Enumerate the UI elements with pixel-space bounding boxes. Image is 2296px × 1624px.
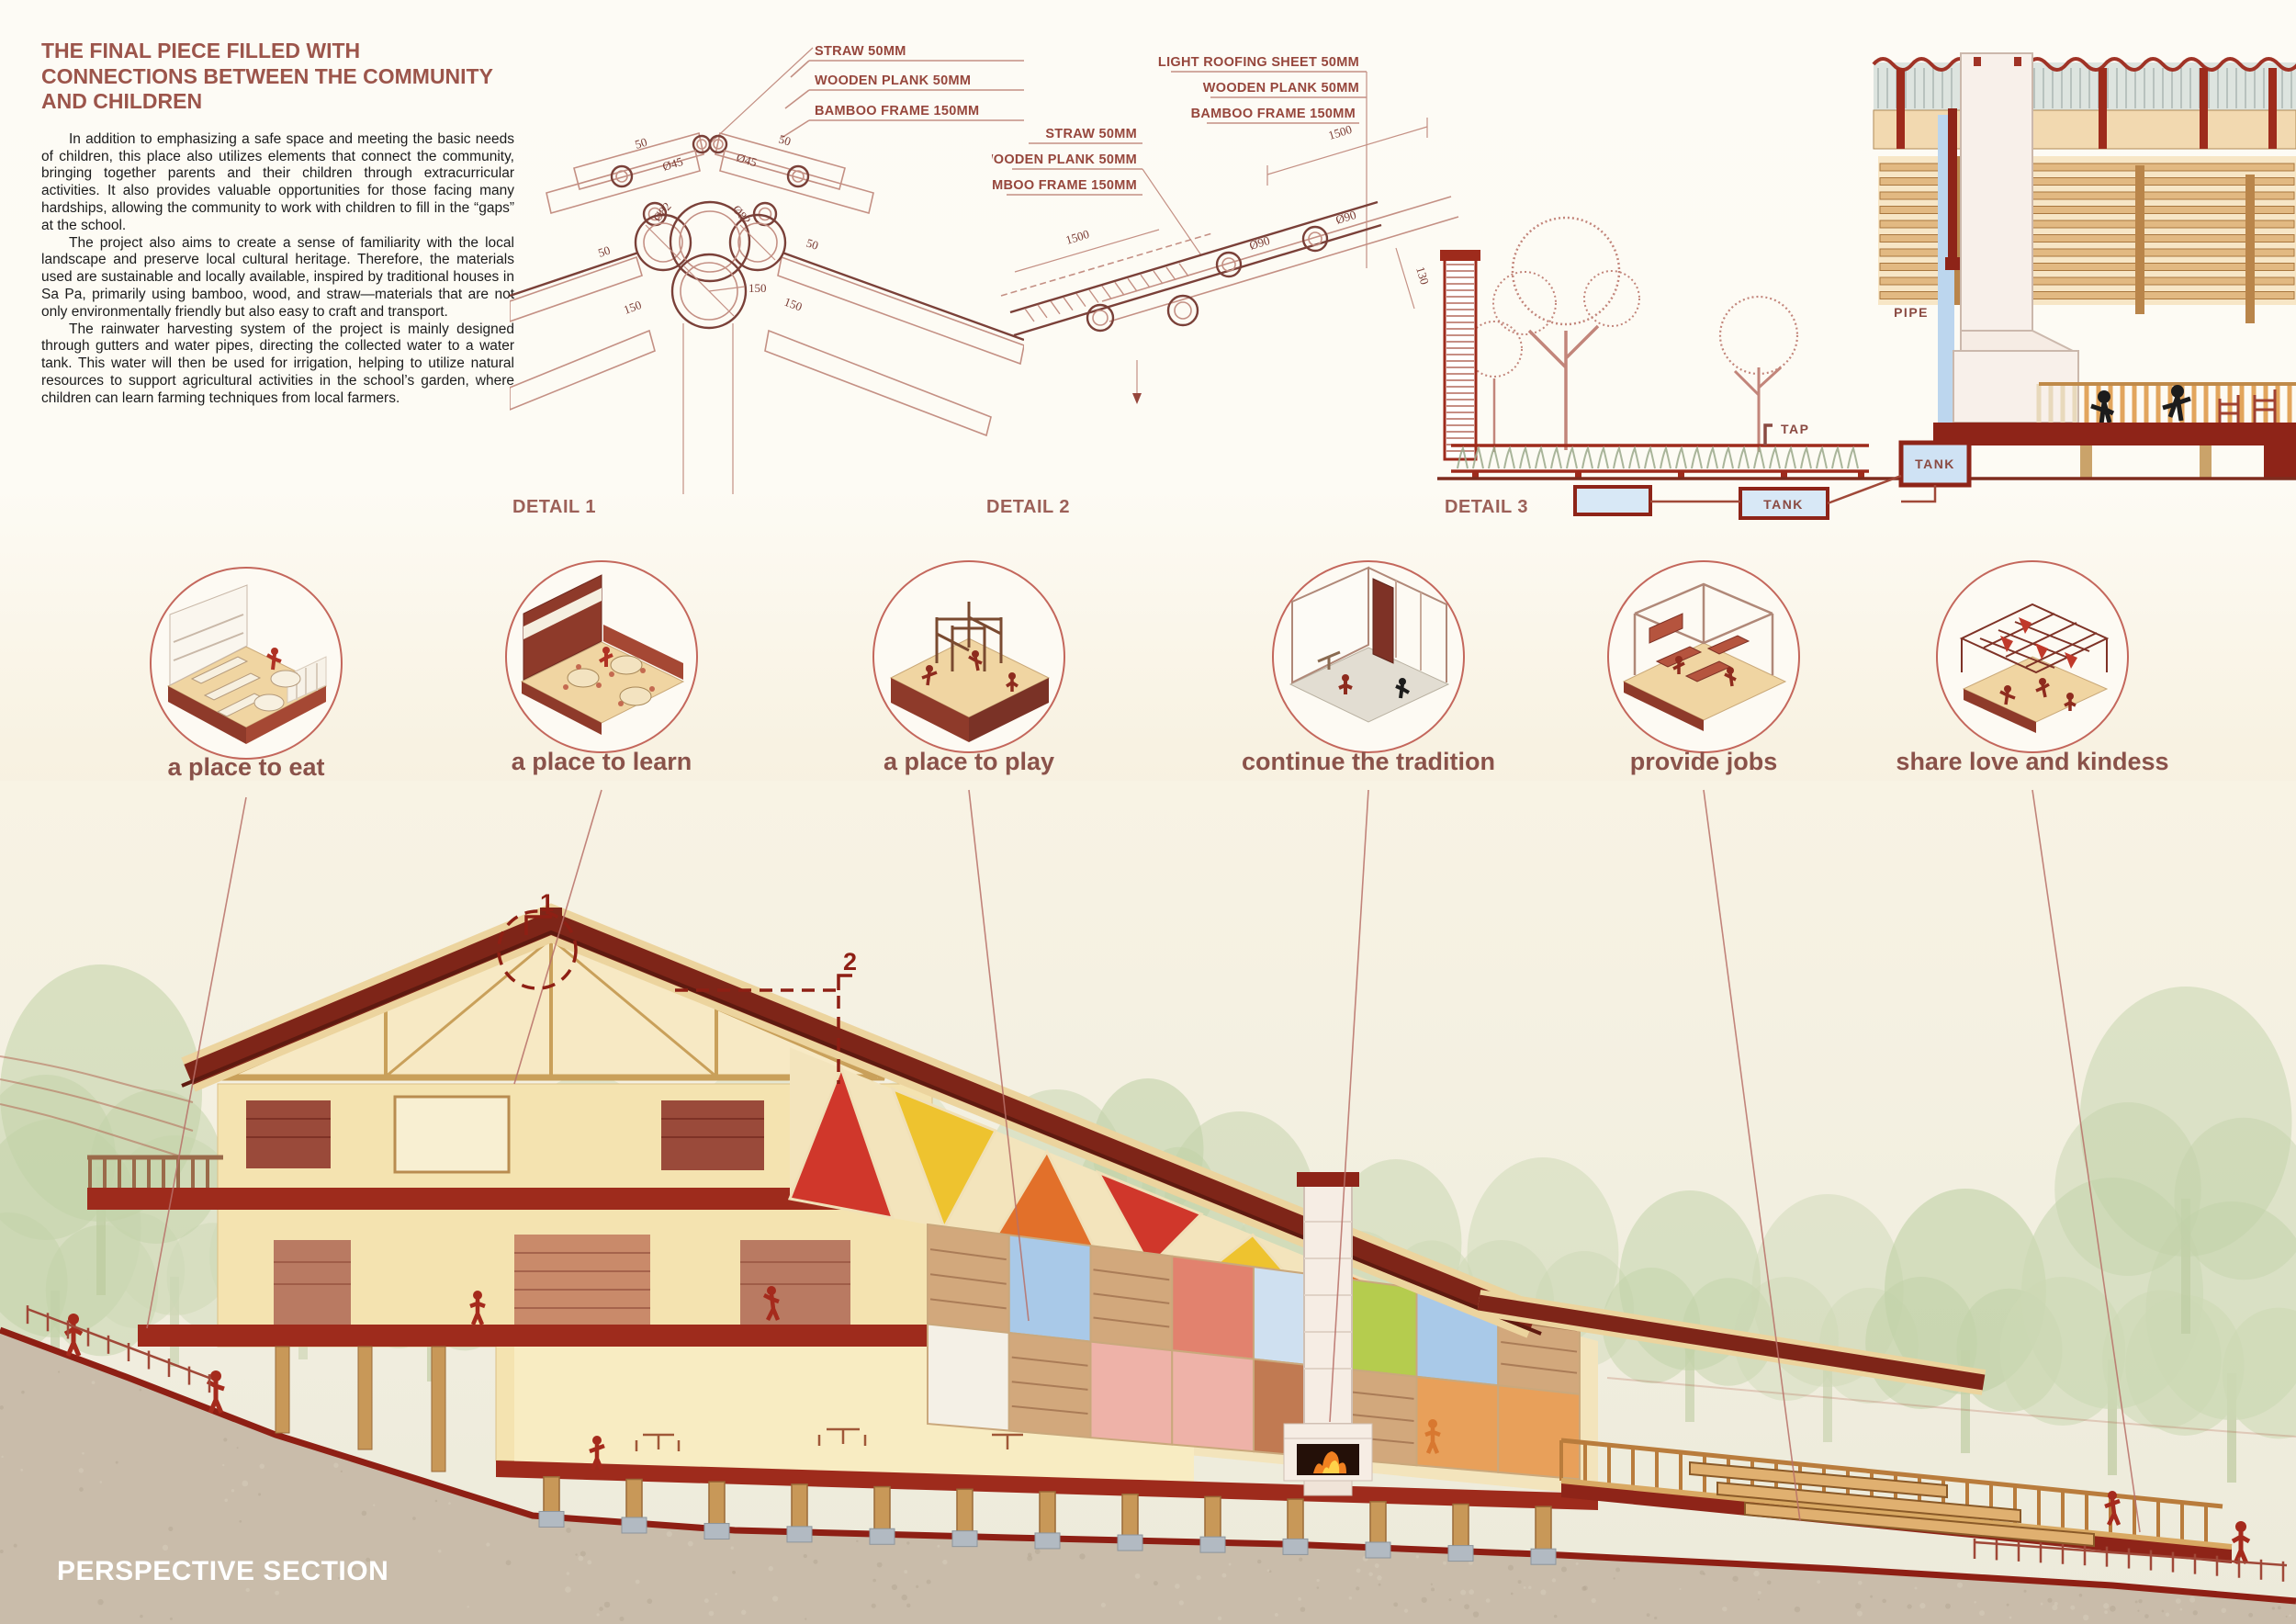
plants-scribble [1458, 448, 1858, 468]
checker-cell [1172, 1257, 1254, 1359]
ground-speck [259, 1463, 264, 1469]
ground-speck [1275, 1613, 1278, 1617]
ground-speck [1518, 1580, 1522, 1584]
hatch-tick [1179, 264, 1188, 276]
ground-speck [1795, 1607, 1800, 1612]
ground-speck [1767, 1580, 1772, 1585]
ground-speck [1882, 1599, 1885, 1603]
stilt [1040, 1492, 1055, 1539]
ground-speck [565, 1586, 571, 1593]
intro-paragraph-2: The project also aims to create a sense … [41, 235, 514, 321]
ground-speck [1028, 1552, 1031, 1556]
stilt [544, 1477, 559, 1517]
plant-scribble [1520, 448, 1530, 468]
ground-speck [1356, 1586, 1359, 1590]
wall-post [2245, 175, 2255, 323]
ground-speck [872, 1579, 876, 1583]
svg-text:150: 150 [622, 298, 643, 317]
ground-speck [856, 1540, 858, 1542]
stilt [1205, 1496, 1221, 1542]
ground-speck [2289, 1614, 2291, 1617]
upper-windows [246, 1097, 764, 1172]
ground-speck [1316, 1579, 1319, 1582]
ground-speck [904, 1570, 907, 1573]
concept-label-tradition: continue the tradition [1212, 748, 1525, 776]
plant-scribble [1817, 448, 1827, 468]
ground-speck [1196, 1575, 1200, 1580]
intro-paragraph-1: In addition to emphasizing a safe space … [41, 131, 514, 235]
ground-speck [2286, 1616, 2288, 1618]
svg-text:BAMBOO FRAME 150MM: BAMBOO FRAME 150MM [1191, 107, 1356, 121]
plant-scribble [1707, 448, 1717, 468]
ground-speck [258, 1493, 261, 1495]
ground-speck [2007, 1604, 2009, 1607]
fascia-band [1874, 110, 2296, 149]
stilt-footing [1448, 1546, 1473, 1562]
ground-speck [1377, 1575, 1381, 1580]
ground-speck [937, 1545, 940, 1548]
ground-speck [435, 1500, 437, 1502]
ground-speck [82, 1452, 84, 1455]
ground-speck [1554, 1615, 1557, 1618]
hatch-tick [1128, 278, 1137, 291]
detail1-label: DETAIL 1 [512, 497, 596, 518]
ground-speck [20, 1469, 23, 1472]
hatch-tick [1154, 271, 1163, 284]
stilt-footing [704, 1524, 729, 1539]
ground-speck [667, 1531, 672, 1537]
ground-speck [566, 1528, 571, 1533]
ground-speck [1540, 1589, 1546, 1595]
concept-circle-learn [496, 551, 707, 762]
ground-speck [1679, 1588, 1681, 1590]
ground-speck [506, 1560, 512, 1565]
ground-speck [704, 1598, 709, 1603]
ground-speck [1979, 1610, 1985, 1616]
page-title: THE FINAL PIECE FILLED WITH CONNECTIONS … [41, 39, 514, 115]
ground-speck [1422, 1597, 1427, 1603]
ground-speck [1855, 1603, 1861, 1608]
concept-label-share: share love and kindess [1876, 748, 2189, 776]
ground-speck [231, 1489, 234, 1492]
striped-pillar [1440, 250, 1480, 459]
ground-speck [567, 1572, 570, 1575]
svg-text:50: 50 [805, 236, 820, 253]
svg-text:2: 2 [843, 948, 857, 976]
ground-speck [2221, 1607, 2226, 1613]
ground-speck [2135, 1601, 2138, 1604]
svg-text:150: 150 [748, 281, 767, 295]
ground-speck [1460, 1590, 1466, 1596]
plant-scribble [1676, 448, 1686, 468]
ground-speck [170, 1618, 173, 1620]
plant-scribble [1629, 448, 1639, 468]
detail2-label: DETAIL 2 [986, 497, 1070, 518]
tap-icon [1765, 425, 1773, 445]
ground-speck [2041, 1603, 2043, 1606]
ground-speck [1448, 1598, 1451, 1601]
ground-speck [877, 1562, 883, 1568]
ground-speck [804, 1554, 807, 1558]
stilt [1453, 1505, 1469, 1551]
hatch-tick [1076, 294, 1086, 307]
ground-speck [1974, 1601, 1976, 1604]
detail2-drawing: LIGHT ROOFING SHEET 50MM WOODEN PLANK 50… [992, 37, 1469, 496]
ground-speck [1870, 1596, 1873, 1598]
plant-scribble [1598, 448, 1608, 468]
hatch-tick [1141, 275, 1150, 288]
presentation-board: THE FINAL PIECE FILLED WITH CONNECTIONS … [0, 0, 2296, 1624]
ground-speck [1552, 1578, 1556, 1582]
ground-speck [448, 1502, 451, 1505]
ground-speck [731, 1547, 734, 1550]
ground-speck [872, 1604, 876, 1608]
ground-speck [1524, 1586, 1526, 1589]
stilt [957, 1489, 973, 1536]
ground-speck [1654, 1617, 1657, 1619]
ground-speck [1300, 1607, 1306, 1612]
ground-speck [362, 1511, 367, 1517]
ground-speck [1613, 1577, 1615, 1579]
checker-cell [928, 1325, 1009, 1431]
ground-speck [97, 1599, 103, 1605]
ground-speck [223, 1438, 227, 1441]
ground-speck [619, 1617, 624, 1621]
ground-speck [1857, 1611, 1863, 1617]
svg-text:Ø90: Ø90 [1334, 208, 1357, 227]
ground-speck [1431, 1584, 1433, 1585]
detail1-dimensions: 50 50 Ø45 Ø45 Ø82 Ø82 50 50 150 150 150 [596, 132, 820, 317]
detail1-callouts: STRAW 50MM WOODEN PLANK 50MM BAMBOO FRAM… [710, 44, 1024, 143]
ground-speck [438, 1550, 441, 1552]
ground-speck [1317, 1586, 1319, 1588]
svg-text:STRAW 50MM: STRAW 50MM [1045, 127, 1137, 141]
ground-speck [2138, 1599, 2142, 1603]
ground-speck [224, 1498, 228, 1502]
concept-circle-jobs [1598, 551, 1809, 762]
pipe-joint [1945, 257, 1960, 270]
ground-speck [1576, 1562, 1579, 1565]
ground-speck [140, 1389, 142, 1392]
svg-text:1: 1 [540, 889, 554, 917]
ground-speck [1416, 1555, 1419, 1558]
plant-scribble [1754, 448, 1764, 468]
ground-speck [813, 1560, 817, 1564]
plant-scribble [1551, 448, 1561, 468]
ground-speck [1079, 1553, 1085, 1559]
plant-scribble [1645, 448, 1655, 468]
ground-speck [688, 1541, 693, 1547]
plant-scribble [1801, 448, 1811, 468]
detail1-ridge-joint [510, 133, 1024, 494]
ground-speck [902, 1595, 907, 1600]
ground-speck [245, 1588, 249, 1592]
ground-speck [1945, 1604, 1951, 1609]
ground-speck [741, 1610, 746, 1615]
stilt [874, 1487, 890, 1535]
ground-speck [1919, 1603, 1925, 1608]
ground-speck [1379, 1584, 1381, 1586]
pipe-label: PIPE [1894, 305, 1929, 320]
ground-speck [1486, 1598, 1491, 1603]
detail2-callouts-side: STRAW 50MM WOODEN PLANK 50MM BAMBOO FRAM… [992, 127, 1201, 255]
ground-speck [1035, 1549, 1041, 1554]
ground-speck [942, 1560, 947, 1564]
ground-speck [1469, 1589, 1474, 1595]
stilt [792, 1484, 807, 1532]
ground-speck [2193, 1610, 2198, 1615]
ground-speck [58, 1371, 60, 1373]
tank-main-label: TANK [1915, 457, 1955, 471]
ground-speck [2110, 1606, 2116, 1612]
stilt-footing [539, 1511, 564, 1527]
ground-speck [373, 1505, 375, 1506]
checker-cell [1498, 1385, 1580, 1479]
deck-slab [1933, 423, 2296, 445]
svg-text:150: 150 [782, 295, 804, 314]
ground-speck [1, 1456, 4, 1459]
stilt [1288, 1499, 1303, 1544]
stilt [709, 1482, 725, 1528]
detail3-label: DETAIL 3 [1445, 497, 1528, 518]
ground-speck [587, 1560, 591, 1564]
ground-speck [21, 1391, 25, 1394]
ground-speck [275, 1591, 279, 1596]
hatch-tick [1025, 309, 1034, 321]
water-tanks: TANK TANK [1575, 443, 1969, 518]
ground-speck [1703, 1573, 1705, 1575]
plant-scribble [1660, 448, 1671, 468]
ground-speck [1101, 1603, 1106, 1607]
stilt-footing [870, 1528, 895, 1544]
ground-speck [2144, 1614, 2149, 1618]
ground-speck [2024, 1590, 2027, 1593]
ground-speck [2137, 1610, 2139, 1612]
buried-tank [1575, 487, 1650, 514]
ground-speck [239, 1520, 242, 1523]
ground-speck [1298, 1597, 1301, 1601]
stilt [1536, 1506, 1551, 1554]
concept-circle-tradition [1263, 551, 1474, 762]
ground-speck [599, 1607, 603, 1611]
ground-speck [1375, 1563, 1379, 1568]
detail1-drawing: STRAW 50MM WOODEN PLANK 50MM BAMBOO FRAM… [510, 37, 1024, 496]
detail2-hatch [1025, 264, 1188, 321]
detail3-drawing: PIPE [1437, 28, 2296, 528]
deck-footing [2264, 445, 2296, 478]
ground-speck [467, 1606, 469, 1607]
ground-speck [2189, 1597, 2195, 1603]
svg-text:1500: 1500 [1064, 227, 1090, 247]
ground-speck [1473, 1611, 1479, 1617]
svg-text:BAMBOO FRAME 150MM: BAMBOO FRAME 150MM [815, 104, 979, 118]
plant-scribble [1785, 448, 1795, 468]
ground-speck [116, 1461, 118, 1464]
ground-speck [1221, 1573, 1226, 1578]
hatch-tick [1038, 305, 1047, 318]
ground-speck [1135, 1573, 1141, 1579]
ground-speck [1511, 1593, 1514, 1596]
ground-speck [1229, 1562, 1232, 1565]
svg-text:50: 50 [633, 135, 648, 152]
svg-text:130: 130 [1413, 265, 1432, 286]
ground-speck [579, 1556, 584, 1562]
ground-speck [1299, 1558, 1302, 1562]
ground-speck [1218, 1617, 1222, 1621]
ground-speck [2079, 1594, 2083, 1597]
ground-speck [906, 1541, 909, 1544]
ground-speck [1464, 1604, 1469, 1609]
plant-scribble [1536, 448, 1546, 468]
stilt-footing [1035, 1533, 1060, 1549]
ground-speck [1722, 1607, 1727, 1611]
ground-speck [805, 1618, 806, 1619]
hatch-tick [1166, 267, 1176, 280]
plant-scribble [1504, 448, 1514, 468]
ground-speck [163, 1545, 168, 1551]
ground-speck [412, 1517, 416, 1520]
ground-speck [1647, 1613, 1650, 1617]
ground-speck [1732, 1576, 1738, 1582]
stilt-footing [952, 1531, 977, 1547]
ground-speck [2009, 1617, 2012, 1619]
ground-speck [604, 1602, 610, 1607]
ground-speck [2104, 1610, 2108, 1614]
ground-speck [2272, 1607, 2275, 1609]
perspective-section: 1 2 PERSPECTIVE SECTION [0, 781, 2296, 1624]
ground-speck [1404, 1608, 1408, 1612]
ground-speck [1592, 1598, 1596, 1603]
svg-text:BAMBOO FRAME 150MM: BAMBOO FRAME 150MM [992, 178, 1137, 193]
plant-scribble [1582, 448, 1593, 468]
tank-buried-label: TANK [1763, 497, 1804, 512]
ground-speck [892, 1585, 897, 1590]
ground-speck [2052, 1605, 2057, 1610]
svg-text:LIGHT ROOFING SHEET 50MM: LIGHT ROOFING SHEET 50MM [1158, 55, 1359, 70]
svg-text:1500: 1500 [1326, 122, 1353, 142]
ground-speck [79, 1468, 84, 1473]
stilt-footing [1283, 1539, 1308, 1554]
fireplace-column [1373, 579, 1393, 663]
ground-speck [1615, 1568, 1620, 1573]
svg-text:Ø45: Ø45 [735, 151, 759, 170]
ground-speck [1431, 1588, 1435, 1592]
water-pipe-red [1948, 108, 1957, 265]
ground-speck [596, 1613, 599, 1616]
intro-paragraph-3: The rainwater harvesting system of the p… [41, 321, 514, 408]
ground-speck [715, 1593, 717, 1596]
ground-speck [769, 1566, 774, 1572]
ground-speck [2047, 1598, 2052, 1603]
hatch-tick [1064, 298, 1073, 310]
svg-text:50: 50 [777, 132, 793, 149]
ground-speck [1561, 1567, 1567, 1573]
ground-speck [1349, 1596, 1353, 1600]
ground-speck [92, 1381, 96, 1384]
ground-speck [1179, 1600, 1184, 1605]
ground-speck [168, 1527, 173, 1531]
ground-speck [1175, 1584, 1180, 1589]
svg-text:Ø45: Ø45 [660, 154, 684, 174]
ground-speck [341, 1471, 343, 1472]
ground-speck [2179, 1608, 2182, 1611]
ground-speck [772, 1596, 778, 1601]
ground-speck [636, 1580, 640, 1585]
ground-speck [14, 1544, 17, 1548]
stilt-footing [1200, 1537, 1225, 1552]
tree-lineart-group [1467, 218, 1797, 452]
plant-scribble [1832, 448, 1842, 468]
concept-label-jobs: provide jobs [1548, 748, 1860, 776]
ground-speck [916, 1585, 918, 1588]
tap-label: TAP [1781, 422, 1809, 436]
ground-speck [1753, 1571, 1759, 1576]
stilt-footing [1366, 1542, 1390, 1558]
detail3-building-fragment [1874, 59, 2296, 323]
ground-speck [906, 1604, 910, 1607]
ground-speck [100, 1481, 103, 1483]
ground-speck [1508, 1565, 1514, 1571]
plant-scribble [1489, 448, 1499, 468]
floor-slab-mid [138, 1325, 974, 1347]
concept-label-eat: a place to eat [90, 753, 402, 782]
plant-scribble [1692, 448, 1702, 468]
ground-speck [2248, 1613, 2253, 1618]
ground-speck [333, 1463, 338, 1468]
ground-speck [1758, 1591, 1761, 1595]
plant-scribble [1567, 448, 1577, 468]
ground-speck [1817, 1580, 1820, 1584]
ground-speck [222, 1464, 224, 1466]
stilt [1122, 1494, 1138, 1540]
ground-speck [1858, 1581, 1863, 1585]
checker-cell [1091, 1342, 1173, 1445]
ground-speck [1269, 1570, 1272, 1573]
stilt-footing [622, 1517, 647, 1533]
concept-label-play: a place to play [813, 748, 1125, 776]
stilt-footing [1531, 1549, 1556, 1564]
ground-speck [1368, 1572, 1373, 1576]
ground-speck [237, 1447, 239, 1449]
plant-scribble [1770, 448, 1780, 468]
ground-speck [79, 1487, 84, 1492]
ground-speck [1528, 1586, 1531, 1589]
ground-speck [1356, 1568, 1361, 1573]
ground-speck [2162, 1610, 2165, 1613]
svg-text:50: 50 [596, 243, 612, 260]
ground-speck [2103, 1603, 2109, 1608]
deck-post [2200, 445, 2212, 478]
svg-text:WOODEN PLANK 50MM: WOODEN PLANK 50MM [815, 73, 971, 88]
checker-cell [1172, 1350, 1254, 1451]
tree [90, 1089, 222, 1244]
concept-circle-share [1927, 551, 2138, 762]
ground-speck [486, 1542, 490, 1546]
ground-speck [1957, 1583, 1963, 1588]
ground-speck [1581, 1586, 1586, 1591]
plant-scribble [1723, 448, 1733, 468]
ground-speck [1915, 1586, 1918, 1589]
ground-speck [1443, 1562, 1446, 1565]
ground-speck [242, 1481, 248, 1487]
plant-scribble [1739, 448, 1749, 468]
concept-circle-eat [141, 558, 352, 769]
stilt [1370, 1502, 1386, 1548]
ground-speck [2070, 1606, 2075, 1610]
intro-text-block: THE FINAL PIECE FILLED WITH CONNECTIONS … [41, 39, 514, 408]
ground-speck [2278, 1606, 2281, 1609]
plant-scribble [1848, 448, 1858, 468]
